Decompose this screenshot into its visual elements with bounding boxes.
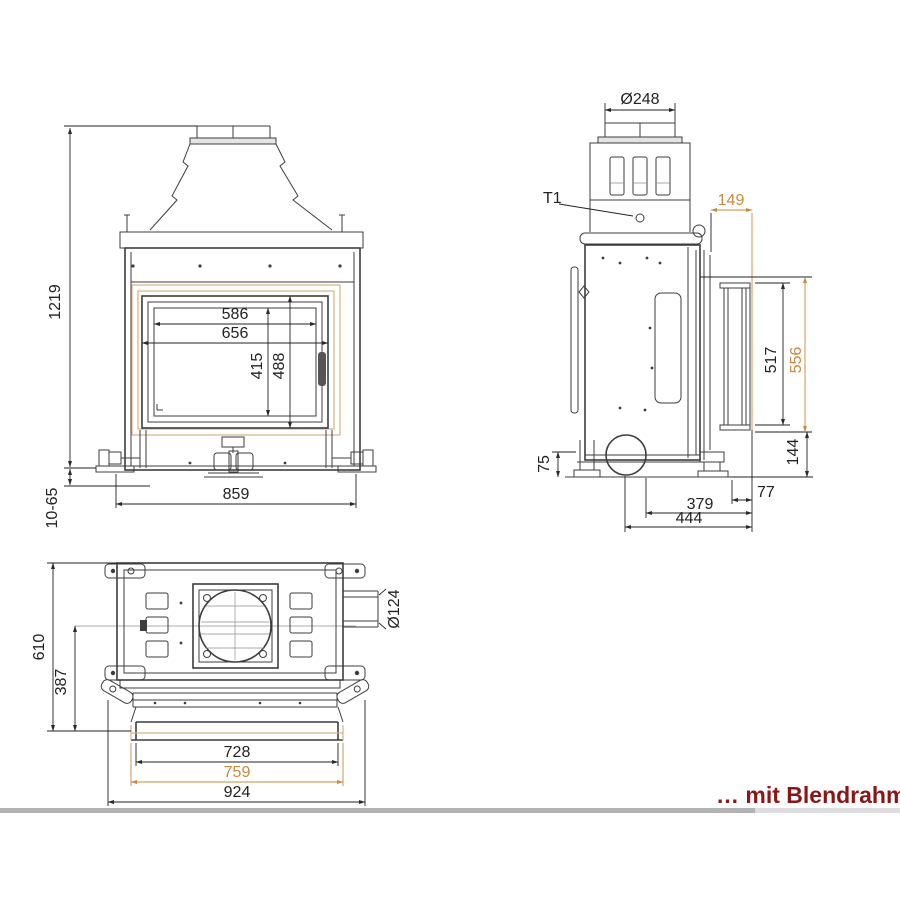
scrollbar-thumb[interactable] xyxy=(0,808,755,813)
side-slot xyxy=(655,293,681,403)
top-plate-pins xyxy=(124,215,345,232)
side-flue-stub xyxy=(605,103,675,137)
caption-text: … mit Blendrahmen xyxy=(716,782,900,809)
technical-drawing: 1219 10-65 586 656 415 488 859 T1 xyxy=(0,0,900,830)
dim-frame-depth: 149 xyxy=(718,192,745,209)
dim-intake-diameter: Ø124 xyxy=(386,589,403,628)
dim-frame-height: 556 xyxy=(788,347,805,374)
upper-box xyxy=(590,143,690,200)
sensor-leader xyxy=(559,204,633,216)
dim-foot-height: 75 xyxy=(536,455,553,473)
left-foot-plate xyxy=(96,466,134,472)
dim-overall-height: 1219 xyxy=(47,284,64,320)
top-view: Ø124 610 387 728 759 924 xyxy=(31,563,403,806)
dim-front-offset: 77 xyxy=(757,484,775,501)
dim-total-width: 924 xyxy=(224,784,251,801)
adjuster-knob-right xyxy=(236,453,253,470)
top-bar xyxy=(580,233,702,244)
front-trim-frame xyxy=(131,725,343,740)
dim-total-depth-top: 610 xyxy=(31,634,48,661)
back-plate xyxy=(571,267,578,413)
horizontal-scrollbar[interactable] xyxy=(0,808,900,813)
side-trim-frame xyxy=(724,288,750,425)
dim-opening-height: 517 xyxy=(763,347,780,374)
intake-stub xyxy=(343,591,378,627)
door-handle xyxy=(318,352,326,386)
back-fitting xyxy=(579,286,589,298)
dim-door-height: 488 xyxy=(271,353,288,380)
dim-glass-width: 586 xyxy=(222,306,249,323)
right-foot-plate xyxy=(338,466,376,472)
top-body-inner xyxy=(124,570,336,673)
hood-left xyxy=(150,144,190,230)
side-foot xyxy=(574,470,600,477)
adjuster-foot xyxy=(204,473,263,477)
front-face xyxy=(131,722,343,740)
side-view: T1 Ø248 149 517 556 xyxy=(536,91,813,532)
label-sensor: T1 xyxy=(543,190,562,207)
dim-glass-height: 415 xyxy=(249,353,266,380)
hinge-pivot xyxy=(693,225,705,237)
adjuster-knob-left xyxy=(214,453,231,470)
sensor-point xyxy=(636,214,644,222)
dim-inner-width: 728 xyxy=(224,744,251,761)
front-flue-stub xyxy=(197,126,270,138)
side-flue-collar xyxy=(598,137,682,143)
glass-corner-mark xyxy=(157,404,163,410)
front-flue-collar xyxy=(190,138,276,144)
dim-height-adjust: 10-65 xyxy=(44,487,61,528)
hood-right xyxy=(276,144,332,230)
sensor-zone xyxy=(590,200,690,232)
front-view: 1219 10-65 586 656 415 488 859 xyxy=(44,126,376,528)
front-plates xyxy=(688,247,710,460)
dim-plinth-height: 144 xyxy=(785,439,802,466)
right-leg xyxy=(326,430,351,468)
dim-door-width: 656 xyxy=(222,325,249,342)
top-plate xyxy=(120,232,363,248)
dim-flue-diameter: Ø248 xyxy=(620,91,659,108)
dim-body-depth-top: 387 xyxy=(53,669,70,696)
side-body xyxy=(585,245,700,460)
dim-frame-width: 759 xyxy=(224,764,251,781)
dim-body-width: 859 xyxy=(223,486,250,503)
dim-total-depth: 444 xyxy=(676,510,703,527)
